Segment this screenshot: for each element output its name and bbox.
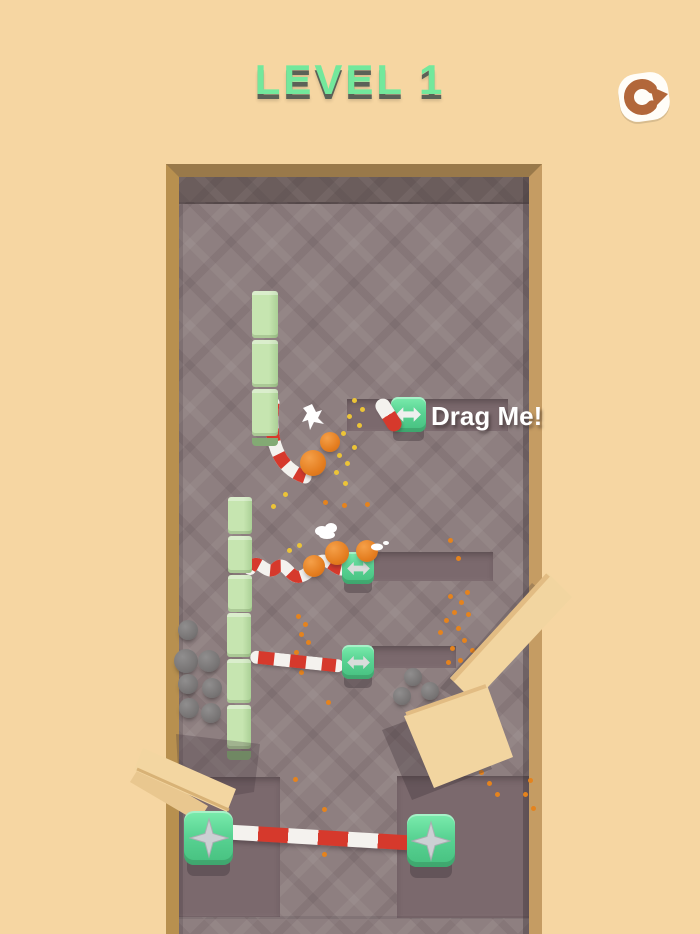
orange-ball <box>300 450 326 476</box>
sand-particle <box>446 660 451 665</box>
sand-particle <box>301 474 306 479</box>
sand-particle <box>322 852 327 857</box>
restart-icon <box>611 66 675 128</box>
sand-particle <box>495 792 500 797</box>
floor-recess-row3 <box>372 646 456 668</box>
left-wall-shadow <box>179 204 183 934</box>
sand-particle <box>337 453 342 458</box>
sand-particle <box>470 648 475 653</box>
orange-ball <box>303 555 325 577</box>
sand-particle <box>323 500 328 505</box>
orange-ball <box>356 540 378 562</box>
green-block-segment <box>227 659 251 703</box>
green-block-segment <box>252 291 278 338</box>
green-block-segment <box>227 613 251 657</box>
sand-particle <box>341 431 346 436</box>
sand-particle <box>465 590 470 595</box>
sand-particle <box>299 632 304 637</box>
double-arrow-icon <box>346 654 371 671</box>
sand-particle <box>287 548 292 553</box>
sand-particle <box>345 461 350 466</box>
sand-particle <box>448 538 453 543</box>
level-title: LEVEL 1 <box>0 56 700 104</box>
sand-particle <box>456 556 461 561</box>
stone-ball <box>178 620 198 640</box>
restart-button[interactable] <box>611 66 675 128</box>
sand-particle <box>448 594 453 599</box>
stone-ball <box>201 703 221 723</box>
sand-particle <box>438 630 443 635</box>
sand-particle <box>450 646 455 651</box>
sand-particle <box>306 640 311 645</box>
sand-particle <box>343 481 348 486</box>
sand-particle <box>334 470 339 475</box>
four-way-star-icon <box>411 820 451 862</box>
green-block-segment <box>252 340 278 387</box>
orange-ball <box>320 432 340 452</box>
drag-cube-bottom-right[interactable] <box>407 814 455 867</box>
sand-particle <box>487 781 492 786</box>
sand-particle <box>459 600 464 605</box>
stone-ball <box>178 674 198 694</box>
right-wall-shadow <box>523 177 529 934</box>
sand-particle <box>365 502 370 507</box>
drag-me-label: Drag Me! <box>431 401 542 432</box>
sand-particle <box>352 445 357 450</box>
sand-particle <box>296 614 301 619</box>
stone-ball <box>202 678 222 698</box>
stone-ball <box>174 649 198 673</box>
green-block-segment <box>227 705 251 749</box>
drag-cube-bottom-left[interactable] <box>184 811 233 865</box>
sand-particle <box>297 543 302 548</box>
sand-particle <box>458 658 463 663</box>
sand-particle <box>271 504 276 509</box>
green-block-segment <box>228 536 252 573</box>
sand-particle <box>452 610 457 615</box>
sand-particle <box>322 807 327 812</box>
sand-particle <box>347 414 352 419</box>
orange-ball <box>325 541 349 565</box>
sand-particle <box>357 423 362 428</box>
sand-particle <box>326 700 331 705</box>
four-way-star-icon <box>189 817 229 859</box>
green-block-segment <box>228 497 252 534</box>
sand-particle <box>479 770 484 775</box>
sand-particle <box>523 792 528 797</box>
game-screen: LEVEL 1 <box>0 0 700 934</box>
back-wall <box>179 177 529 204</box>
sand-particle <box>528 778 533 783</box>
stone-ball <box>198 650 220 672</box>
drag-cube-row3[interactable] <box>342 645 374 679</box>
sand-particle <box>470 757 475 762</box>
green-block-base <box>252 438 278 446</box>
sand-particle <box>456 626 461 631</box>
stone-ball <box>404 668 422 686</box>
green-block-base <box>227 751 251 760</box>
sand-particle <box>462 638 467 643</box>
sand-particle <box>299 670 304 675</box>
green-block-segment <box>228 575 252 612</box>
sand-particle <box>303 622 308 627</box>
floor-seam <box>179 916 529 919</box>
floor-recess-row2 <box>359 552 493 581</box>
sand-particle <box>444 618 449 623</box>
sand-particle <box>283 492 288 497</box>
double-arrow-icon <box>346 560 371 577</box>
sand-particle <box>293 777 298 782</box>
stone-ball <box>179 698 199 718</box>
sand-particle <box>531 806 536 811</box>
sand-particle <box>472 664 477 669</box>
sand-particle <box>466 612 471 617</box>
green-block-segment <box>252 389 278 436</box>
sand-particle <box>342 503 347 508</box>
sand-particle <box>360 407 365 412</box>
sand-particle <box>352 398 357 403</box>
stone-ball <box>421 682 439 700</box>
stone-ball <box>393 687 411 705</box>
